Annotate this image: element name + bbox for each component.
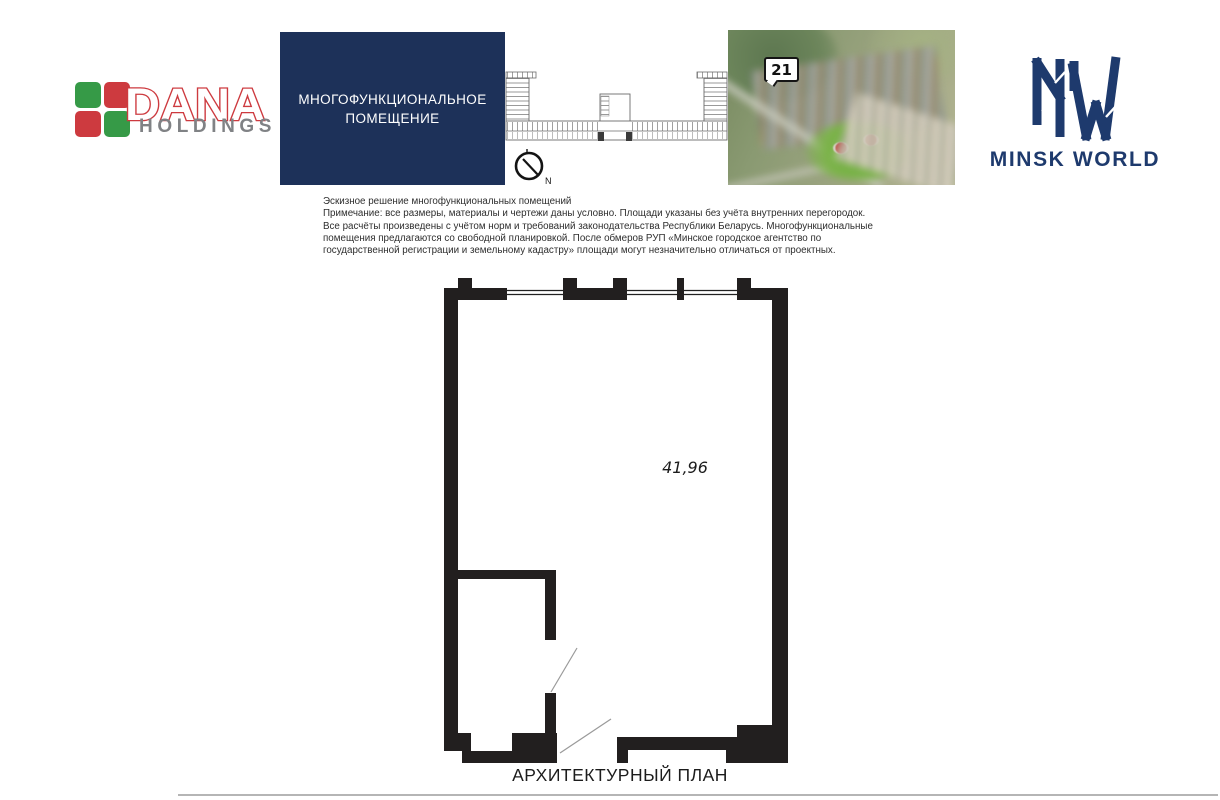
disclaimer-notes: Эскизное решение многофункциональных пом… [323,196,913,257]
compass-north-label: N [545,176,552,186]
floor-plan-drawing: 41,96 [430,270,810,795]
premises-title-text: МНОГОФУНКЦИОНАЛЬНОЕ ПОМЕЩЕНИЕ [280,90,505,128]
dana-holdings-text: HOLDINGS [139,116,276,138]
dana-holdings-logo: DANA HOLDINGS [73,80,273,142]
note-line: Все расчёты произведены с учётом норм и … [323,221,913,233]
footer-divider [178,794,1218,796]
area-value: 41,96 [662,458,708,477]
floor-plan-walls [444,278,788,763]
key-plan-drawing [506,72,727,141]
building-key-plan: N [500,60,735,190]
mw-monogram-icon [1030,53,1122,145]
compass-icon: N [516,149,552,186]
plan-sheet: DANA HOLDINGS МНОГОФУНКЦИОНАЛЬНОЕ ПОМЕЩЕ… [0,0,1220,800]
door-swing-lines [551,648,611,753]
dana-square-red-bl [75,111,101,137]
aerial-photo: 21 [728,30,955,185]
plan-caption: АРХИТЕКТУРНЫЙ ПЛАН [430,765,810,786]
minsk-world-logo: MINSK WORLD [985,50,1165,175]
note-line: помещения предлагаются со свободной план… [323,233,913,245]
premises-title-box: МНОГОФУНКЦИОНАЛЬНОЕ ПОМЕЩЕНИЕ [280,32,505,185]
minsk-world-wordmark: MINSK WORLD [985,148,1165,172]
note-line: государственной регистрации и земельному… [323,245,913,257]
block-21-marker: 21 [764,57,799,82]
note-line: Эскизное решение многофункциональных пом… [323,196,913,208]
note-line: Примечание: все размеры, материалы и чер… [323,208,913,220]
dana-square-green-tl [75,82,101,108]
